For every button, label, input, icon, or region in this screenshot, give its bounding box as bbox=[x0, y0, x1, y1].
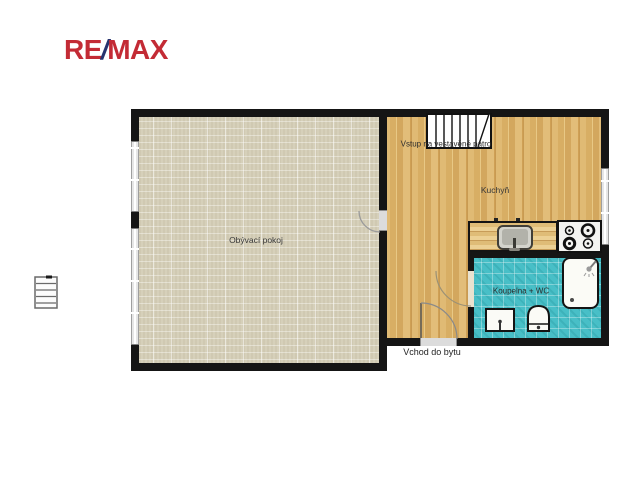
bathroom-floor bbox=[470, 254, 603, 340]
living-room-label: Obývací pokoj bbox=[229, 235, 283, 245]
entrance-label: Vchod do bytu bbox=[403, 347, 461, 357]
kitchen-counter bbox=[468, 221, 558, 252]
logo-max: MAX bbox=[107, 34, 168, 65]
window-icon bbox=[131, 141, 139, 212]
kitchen-label: Kuchyň bbox=[481, 185, 509, 195]
wall-bathroom-top bbox=[468, 252, 601, 258]
window-icon bbox=[131, 228, 139, 345]
ladder-icon bbox=[35, 276, 57, 309]
bathroom-label: Koupelna + WC bbox=[493, 287, 549, 296]
window-icon bbox=[601, 168, 609, 245]
door-entrance bbox=[420, 338, 457, 346]
door-bathroom bbox=[468, 271, 474, 307]
stairs-label: Vstup na vestavěné patro bbox=[401, 140, 492, 149]
wall-bottom-living bbox=[131, 363, 387, 371]
logo-re: RE bbox=[64, 34, 102, 65]
door-living-kitchen bbox=[379, 210, 387, 231]
wall-divider bbox=[379, 109, 387, 371]
wall-top bbox=[131, 109, 609, 117]
floorplan-page: RE/MAX bbox=[0, 0, 640, 480]
remax-logo: RE/MAX bbox=[64, 34, 168, 66]
